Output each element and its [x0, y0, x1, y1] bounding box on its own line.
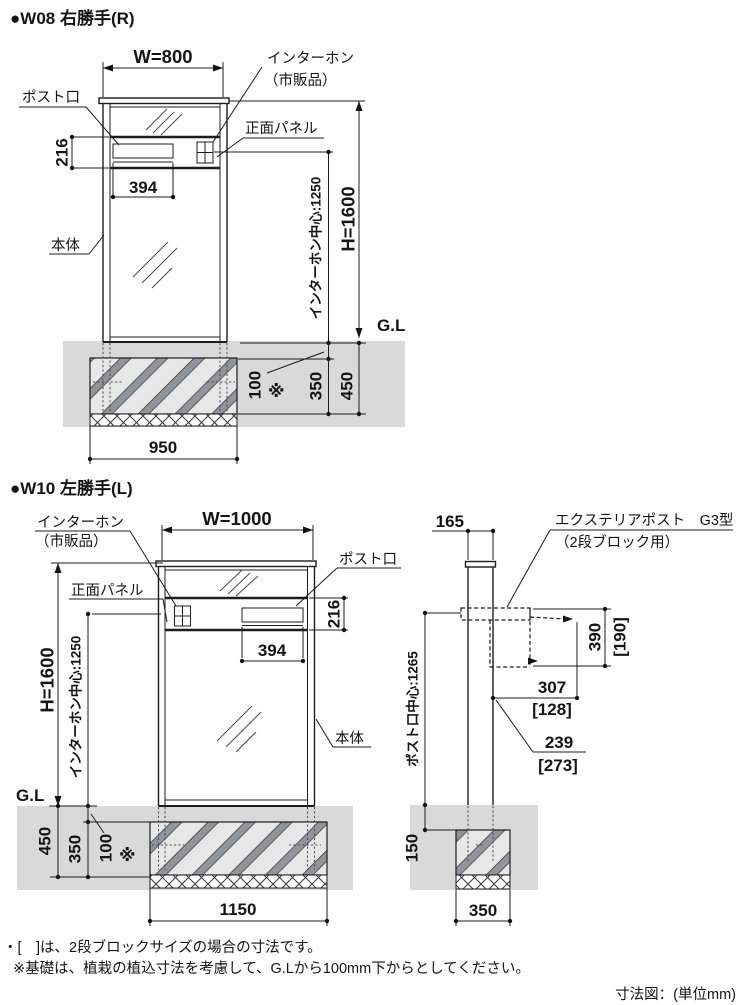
w10-height-dim: H=1600	[37, 647, 58, 712]
side-gravel-layer	[456, 875, 510, 889]
w08-post-slot-label: ポスト口	[22, 89, 80, 106]
side-embed-150-dim: 150	[403, 834, 422, 862]
w10-body-label: 本体	[335, 730, 364, 747]
w10-foundation-width-dim: 1150	[220, 900, 257, 919]
side-depth2-alt-dim: [273]	[538, 756, 578, 775]
w08-glass-hatch-lower	[133, 242, 177, 288]
unit-caption: 寸法図：(単位mm)	[615, 986, 736, 1003]
w08-top-cap	[99, 98, 229, 104]
w10-view: ●W10 左勝手(L)	[10, 478, 401, 926]
w08-intercom-center-dim: インターホン中心:1250	[308, 177, 324, 320]
side-pillar-cap	[466, 562, 496, 568]
w10-width-dimension: W=1000	[162, 508, 313, 560]
w10-width-dim: W=1000	[202, 508, 271, 529]
w08-post-slot	[113, 144, 173, 158]
note-bracket-sizes: ・[ ]は、2段ブロックサイズの場合の寸法です。	[3, 938, 322, 956]
w10-glass-hatch-upper	[220, 570, 258, 596]
side-depth1-alt-dim: [128]	[532, 700, 572, 719]
w10-top-cap	[156, 561, 316, 567]
w08-intercom-market-label: （市販品）	[264, 72, 337, 89]
side-box-height-dim: 390	[586, 623, 605, 651]
w08-total-450-dim: 450	[338, 372, 357, 400]
side-product-callout: エクステリアポスト G3型 （2段ブロック用）	[507, 512, 733, 607]
w10-front-panel-callout: 正面パネル	[69, 582, 167, 622]
side-pillar	[466, 562, 496, 806]
w10-front-panel-label: 正面パネル	[71, 582, 144, 599]
w08-embed-100-dim: 100	[246, 371, 265, 399]
w08-body-label: 本体	[51, 237, 80, 254]
w10-slot-width-dimension: 394	[240, 627, 305, 663]
dimension-drawing: ●W08 右勝手(R)	[0, 0, 740, 1005]
side-depth-dimensions: 307 [128] 239 [273]	[491, 622, 586, 775]
w08-width-dimension: W=800	[103, 46, 223, 97]
side-corner-arrow	[528, 658, 538, 665]
w10-post-slot	[242, 608, 303, 622]
w08-front-panel-label: 正面パネル	[245, 120, 318, 137]
w08-embed-note-mark: ※	[268, 382, 285, 401]
side-pillar-depth-dimension: 165	[432, 512, 495, 560]
w10-intercom-market-label: （市販品）	[35, 533, 108, 550]
side-product-label: エクステリアポスト G3型	[555, 512, 733, 529]
w10-embed-note-mark: ※	[119, 846, 136, 865]
side-foundation-width-dimension: 350	[454, 890, 512, 926]
w08-panel-height-dim: 216	[53, 138, 72, 166]
side-post-center-dim: ポスト口中心:1265	[405, 651, 421, 767]
w08-foundation-width-dim: 950	[149, 438, 177, 457]
w10-panel-height-dim: 216	[325, 600, 344, 628]
w10-gravel-layer	[150, 875, 327, 888]
side-depth2-dim: 239	[545, 733, 573, 752]
w08-glass-hatch-upper	[146, 109, 182, 135]
w10-glass-hatch-lower	[217, 706, 261, 752]
w08-width-dim: W=800	[133, 46, 192, 67]
side-post-box	[461, 608, 573, 667]
footnotes: ・[ ]は、2段ブロックサイズの場合の寸法です。 ※基礎は、植栽の植込寸法を考慮…	[3, 938, 736, 1003]
w10-intercom-unit	[175, 606, 191, 626]
w10-intercom-center-dim: インターホン中心:1250	[68, 636, 84, 779]
note-foundation: ※基礎は、植栽の植込寸法を考慮して、G.Lから100mm下からとしてください。	[13, 960, 530, 977]
side-box-height-dimension: 390 [190]	[533, 607, 630, 668]
dimension-drawing-page: ●W08 右勝手(R)	[0, 0, 740, 1005]
w08-foundation-350-dim: 350	[307, 372, 326, 400]
side-depth1-dim: 307	[538, 678, 566, 697]
side-product-sub-label: （2段ブロック用）	[555, 533, 679, 551]
w08-intercom-unit	[197, 142, 213, 163]
w10-body-callout: 本体	[316, 719, 371, 747]
side-view: 165 エクステリアポスト G3型 （2段ブロック用） ポスト口中心:1265 …	[403, 512, 734, 926]
w08-body-callout: 本体	[49, 235, 104, 254]
w08-gl-label: G.L	[377, 316, 405, 335]
w08-title: ●W08 右勝手(R)	[10, 8, 135, 28]
w08-gravel-layer	[90, 414, 237, 426]
w08-intercom-label: インターホン	[267, 50, 354, 67]
w10-foundation-350-dim: 350	[66, 835, 85, 863]
w10-frame	[156, 561, 316, 806]
side-foundation-width-dim: 350	[469, 901, 497, 920]
w08-panel-height-dimension: 216	[53, 135, 110, 170]
side-flap-arrow	[563, 616, 573, 623]
w10-gl-label: G.L	[16, 786, 44, 805]
w08-view: ●W08 右勝手(R)	[10, 8, 405, 464]
side-pillar-depth-dim: 165	[436, 512, 464, 531]
w10-intercom-label: インターホン	[37, 514, 124, 531]
w08-slot-width-dim: 394	[129, 178, 158, 197]
w08-frame	[99, 98, 229, 342]
w08-height-dim: H=1600	[338, 186, 359, 251]
w08-front-panel-callout: 正面パネル	[217, 120, 324, 157]
w10-post-slot-label: ポスト口	[339, 551, 397, 568]
w10-total-450-dim: 450	[36, 827, 55, 855]
side-box-height-alt-dim: [190]	[611, 617, 630, 657]
w10-title: ●W10 左勝手(L)	[10, 478, 133, 498]
w10-embed-100-dim: 100	[97, 834, 116, 862]
w10-slot-width-dim: 394	[258, 641, 287, 660]
